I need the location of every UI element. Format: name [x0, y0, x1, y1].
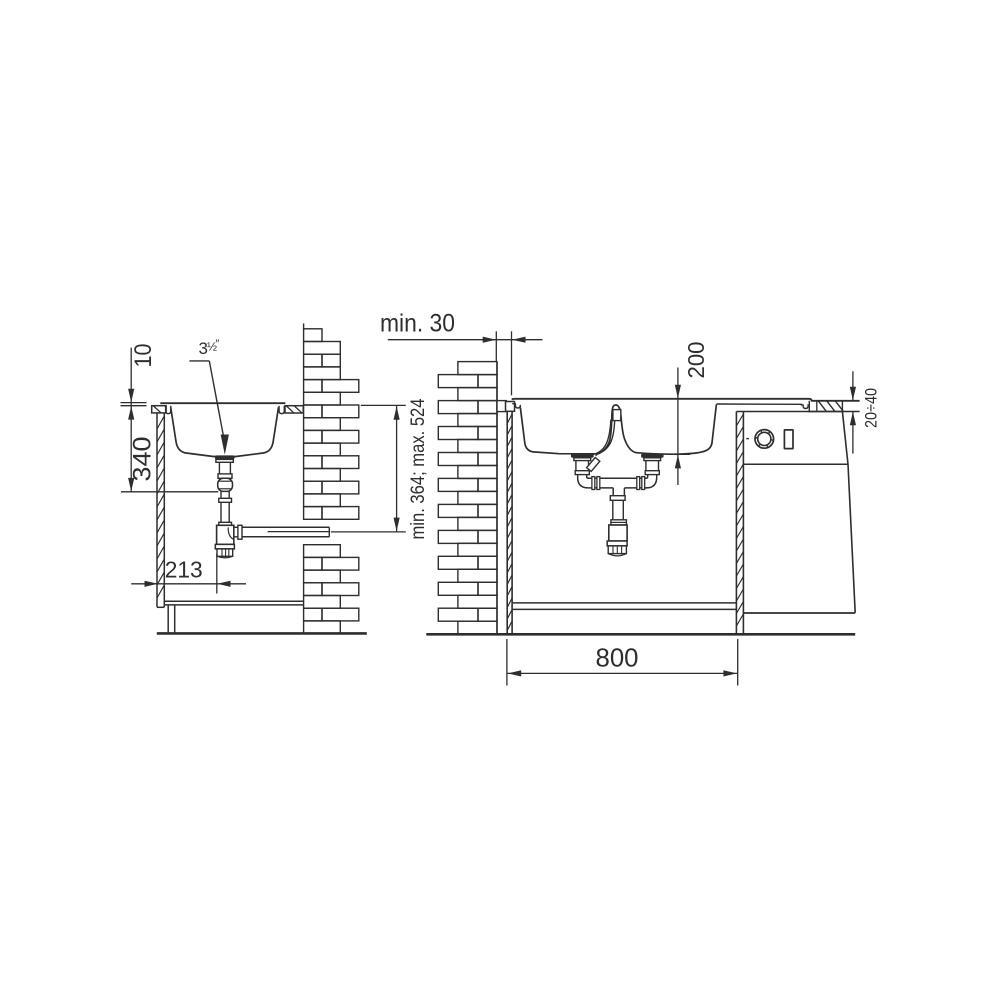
svg-text:800: 800: [596, 643, 639, 673]
svg-text:20÷40: 20÷40: [862, 388, 881, 428]
svg-text:″: ″: [215, 338, 219, 350]
svg-text:min. 30: min. 30: [380, 310, 455, 338]
svg-text:min. 364; max. 524: min. 364; max. 524: [408, 398, 429, 539]
svg-text:200: 200: [683, 342, 709, 379]
svg-text:340: 340: [129, 437, 157, 482]
svg-text:213: 213: [165, 556, 203, 582]
svg-text:10: 10: [130, 344, 157, 368]
